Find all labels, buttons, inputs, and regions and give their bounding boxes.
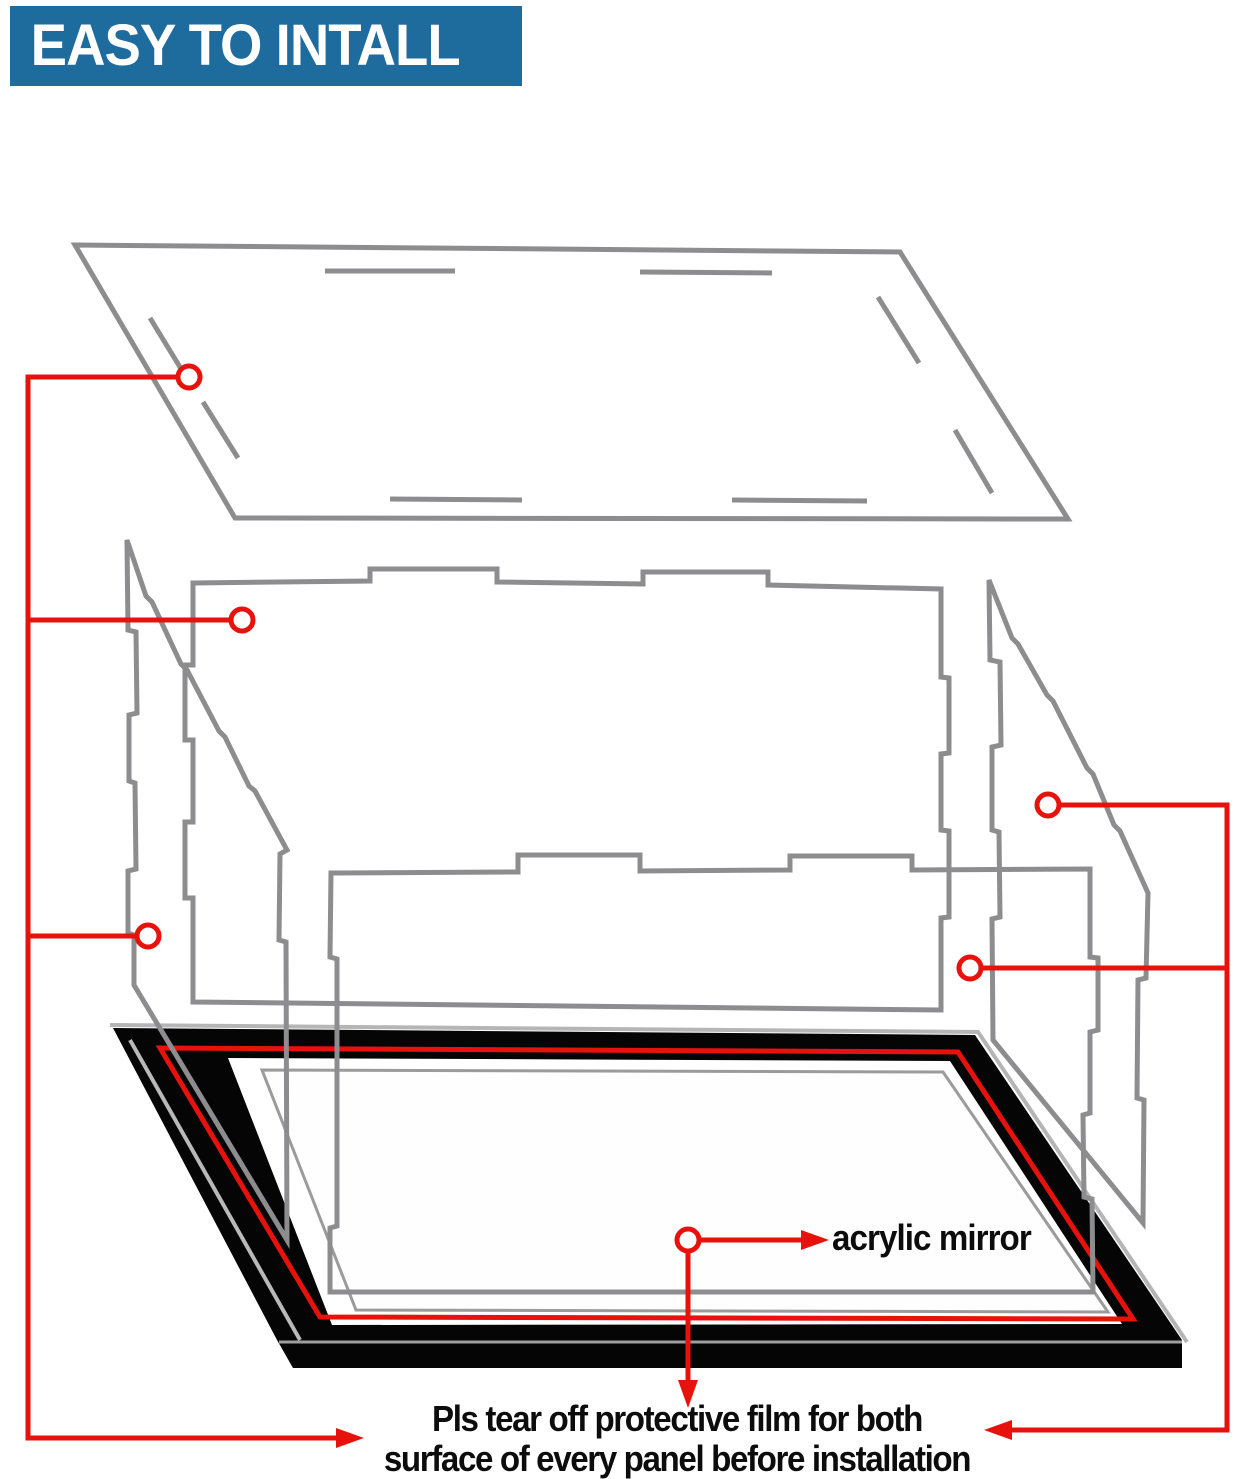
back-panel	[185, 569, 949, 1010]
lid-slot-mark	[640, 272, 772, 273]
lid-slot-mark	[878, 297, 919, 363]
lid-outline	[75, 245, 1068, 519]
callout-circle-right-lower	[959, 957, 981, 979]
top-lid-panel	[75, 245, 1068, 519]
lid-slot-mark	[390, 499, 522, 500]
page: EASY TO INTALL acrylic mirror Pls tear o…	[0, 0, 1234, 1479]
callout-circle-right-panel	[1037, 794, 1059, 816]
callout-circle-left-panel	[137, 925, 159, 947]
lid-slot-mark	[955, 430, 992, 493]
exploded-assembly-diagram	[0, 0, 1234, 1479]
page-title: EASY TO INTALL	[10, 6, 460, 86]
lid-slot-mark	[732, 500, 867, 501]
instruction-line-2: surface of every panel before installati…	[309, 1439, 1045, 1479]
callout-circle-back-panel	[231, 609, 253, 631]
acrylic-mirror-label: acrylic mirror	[832, 1217, 1031, 1259]
title-banner: EASY TO INTALL	[10, 6, 522, 86]
lid-slot-mark	[203, 402, 238, 458]
callout-circle-mirror	[677, 1229, 699, 1251]
instruction-text: Pls tear off protective film for both su…	[309, 1399, 1045, 1479]
callout-circle-lid	[178, 366, 200, 388]
lid-slot-mark	[150, 318, 183, 372]
instruction-line-1: Pls tear off protective film for both	[309, 1399, 1045, 1439]
